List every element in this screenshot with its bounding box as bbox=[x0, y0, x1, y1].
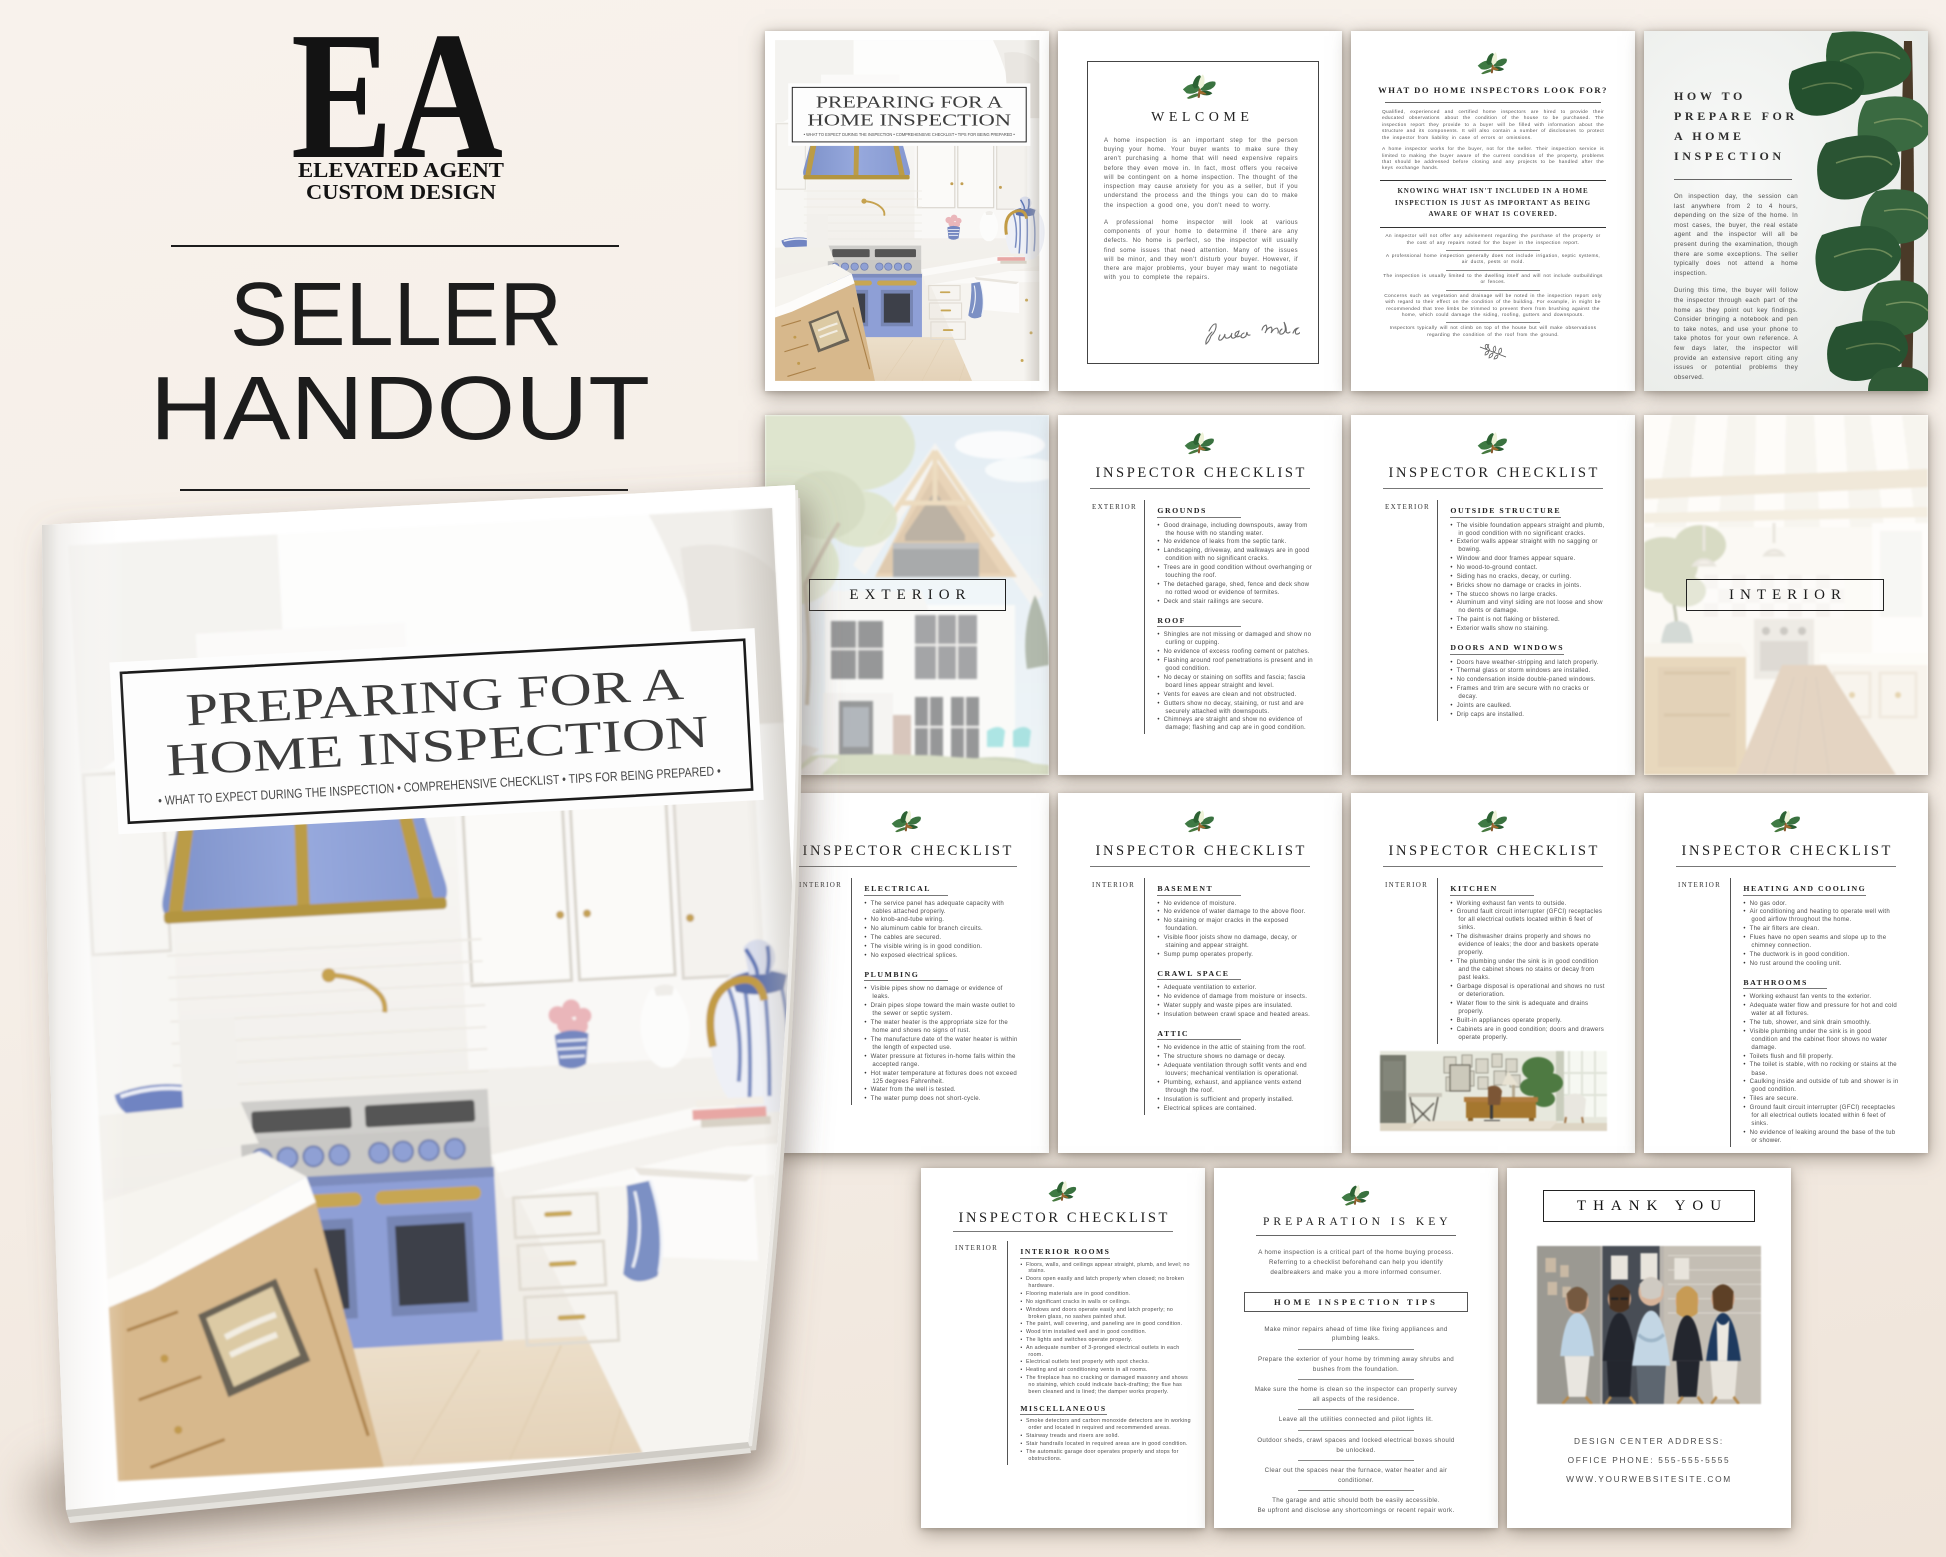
svg-text:CUSTOM DESIGN: CUSTOM DESIGN bbox=[306, 180, 496, 204]
svg-text:SELLER: SELLER bbox=[230, 265, 562, 365]
svg-text:ELEVATED AGENT: ELEVATED AGENT bbox=[298, 158, 504, 182]
